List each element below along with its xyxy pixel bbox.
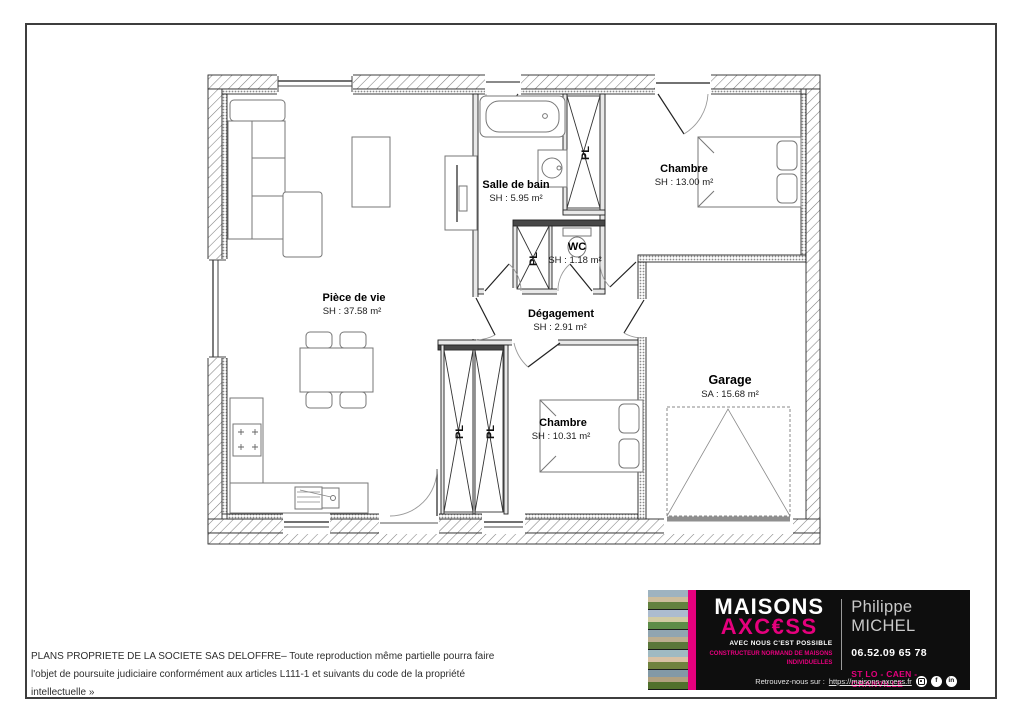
room-label-wc: WC [568,241,586,253]
house-photos-strip [648,590,688,690]
legal-line-2: l'objet de poursuite judiciaire conformé… [31,669,481,680]
closet-label-2: PL [528,252,540,266]
room-label-chambre-1: Chambre [660,163,708,175]
room-label-piece-de-vie: Pièce de vie [323,292,386,304]
contact-phone: 06.52.09 65 78 [851,647,964,659]
instagram-glyph [918,678,925,685]
coffee-table [352,137,390,207]
room-area-degagement: SH : 2.91 m² [533,322,586,333]
room-area-piece-de-vie: SH : 37.58 m² [323,306,382,317]
brand-name-axcess: AXC€SS [706,617,832,638]
brand-subtitle: CONSTRUCTEUR NORMAND DE MAISONS INDIVIDU… [709,650,832,668]
house-photo [648,630,688,650]
room-area-chambre-1: SH : 13.00 m² [655,177,714,188]
door-bedroom1-top [655,74,711,134]
room-area-garage: SA : 15.68 m² [701,389,759,400]
room-label-degagement: Dégagement [528,308,594,320]
door-living-bottom [379,469,439,534]
house-photo [648,590,688,610]
bed-bedroom1 [698,137,801,207]
brand-logo: MAISONS AXC€SS AVEC NOUS C'EST POSSIBLE … [706,597,832,676]
brand-subtitle-line2: INDIVIDUELLES [709,659,832,668]
kitchen-sink [295,487,339,509]
brand-main: MAISONS AXC€SS AVEC NOUS C'EST POSSIBLE … [696,590,970,690]
website-link[interactable]: https://maisons-axcess.fr [829,677,912,686]
house-photo [648,610,688,630]
accent-stripe [688,590,696,690]
brand-card: MAISONS AXC€SS AVEC NOUS C'EST POSSIBLE … [648,590,970,690]
house-photo [648,650,688,670]
room-label-chambre-2: Chambre [539,417,587,429]
room-area-chambre-2: SH : 10.31 m² [532,431,591,442]
legal-line-3: intellectuelle » [31,687,481,698]
furniture [228,96,801,516]
house-photo [648,670,688,690]
garage-door [664,513,793,534]
footer-prefix: Retrouvez-nous sur : [755,677,825,686]
closet-label-1: PL [580,146,592,160]
contact-name: Philippe MICHEL [851,598,964,636]
vertical-divider [841,599,842,670]
room-label-salle-de-bain: Salle de bain [482,179,550,191]
cooktop [233,424,261,456]
room-label-garage: Garage [708,373,751,387]
window-bedroom2-bottom [482,513,525,534]
door-bedroom2 [514,343,560,367]
sofa [228,100,322,257]
dining-table [300,332,373,408]
facebook-icon[interactable]: f [931,676,942,687]
page: Salle de bain SH : 5.95 m² WC SH : 1.18 … [0,0,1024,724]
contact-block: Philippe MICHEL 06.52.09 65 78 ST LO - C… [851,597,964,676]
legal-line-1: PLANS PROPRIETE DE LA SOCIETE SAS DELOFF… [31,651,481,662]
kitchen-counter [230,398,368,513]
legal-notice: PLANS PROPRIETE DE LA SOCIETE SAS DELOFF… [31,651,481,705]
brand-tagline: AVEC NOUS C'EST POSSIBLE [729,640,832,647]
window-living-left [207,259,228,358]
window-living-top [277,74,353,95]
door-wc [558,264,592,291]
room-area-salle-de-bain: SH : 5.95 m² [489,193,542,204]
closet-label-4: PL [485,425,497,439]
closet-label-3: PL [454,425,466,439]
bathtub [480,96,565,137]
brand-footer: Retrouvez-nous sur : https://maisons-axc… [744,676,968,687]
linkedin-icon[interactable]: in [946,676,957,687]
room-area-wc: SH : 1.18 m² [548,255,601,266]
brand-subtitle-line1: CONSTRUCTEUR NORMAND DE MAISONS [709,650,832,659]
tv-unit [445,156,477,230]
garage-parking-area [667,407,790,516]
instagram-icon[interactable] [916,676,927,687]
window-kitchen-bottom [283,513,330,534]
